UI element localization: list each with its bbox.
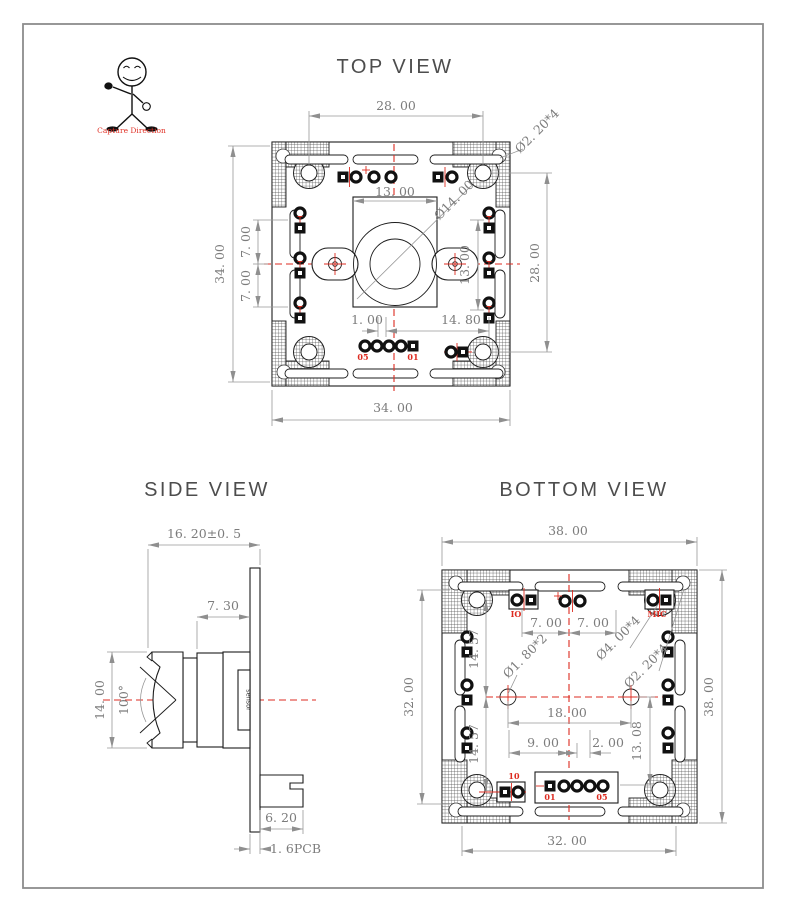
dim-side-fov: 100° [116, 685, 131, 715]
side-lens-cap [152, 652, 183, 748]
dim-top-1: 1. 00 [351, 312, 383, 327]
bottom-io2-label: 10 [508, 771, 520, 781]
dim-top-hole-dia: Ø2. 20*4 [512, 106, 562, 156]
bottom-io-label: IO [511, 609, 522, 619]
top-view: TOP VIEW [212, 56, 562, 426]
bottom-pin-01-label: 01 [544, 792, 555, 802]
dim-top-28-right: 28. 00 [527, 243, 542, 283]
top-pin-01-label: 01 [407, 352, 418, 362]
dim-top-34-left: 34. 00 [212, 244, 227, 284]
dim-side-730: 7. 30 [207, 598, 239, 613]
dim-side-pcb: 1. 6PCB [270, 841, 321, 856]
side-barrel-ring [183, 658, 197, 742]
dim-bottom-9: 9. 00 [527, 735, 559, 750]
dim-top-7b: 7. 00 [238, 270, 253, 302]
side-sensor-label: sensor [245, 689, 253, 711]
dim-bottom-2: 2. 00 [592, 735, 624, 750]
dim-bottom-1457b: 14. 57 [466, 724, 481, 764]
dim-top-13: 13. 00 [375, 184, 415, 199]
top-view-title: TOP VIEW [336, 56, 453, 78]
side-connector [260, 775, 303, 807]
dim-top-1480: 14. 80 [441, 312, 481, 327]
bottom-mic-connector [645, 588, 674, 611]
top-pin-05-label: 05 [357, 352, 368, 362]
dim-bottom-38-top: 38. 00 [548, 523, 588, 538]
capture-direction-label: Capture Direction [97, 126, 166, 135]
side-barrel [197, 653, 223, 747]
dim-bottom-32-bottom: 32. 00 [547, 833, 587, 848]
dim-top-7a: 7. 00 [238, 226, 253, 258]
dim-side-14: 14. 00 [92, 680, 107, 720]
bottom-io-connector [509, 588, 538, 611]
dim-bottom-1308: 13. 08 [629, 721, 644, 761]
bottom-mic-label: MIC [648, 609, 667, 619]
bottom-pin-05-label: 05 [596, 792, 607, 802]
side-view: SIDE VIEW sensor 16. 20±0. 5 7. 30 14. 0… [92, 479, 321, 856]
dim-bottom-32-left: 32. 00 [401, 677, 416, 717]
drawing-sheet: Capture Direction TOP VIEW [0, 0, 790, 909]
dim-top-28: 28. 00 [376, 98, 416, 113]
bottom-view-title: BOTTOM VIEW [499, 479, 668, 501]
dim-bottom-7a: 7. 00 [530, 615, 562, 630]
dim-top-13-vert: 13. 00 [457, 245, 472, 285]
bottom-view: BOTTOM VIEW [401, 479, 727, 856]
dim-bottom-1457a: 14. 57 [466, 629, 481, 669]
dim-bottom-38-right: 38. 00 [701, 677, 716, 717]
dim-side-total: 16. 20±0. 5 [167, 526, 241, 541]
camera-module-drawing: Capture Direction TOP VIEW [0, 0, 790, 909]
dim-bottom-18: 18. 00 [547, 705, 587, 720]
capture-direction-figure-icon [104, 58, 157, 132]
dim-bottom-7b: 7. 00 [577, 615, 609, 630]
dim-top-34-bottom: 34. 00 [373, 400, 413, 415]
side-view-title: SIDE VIEW [144, 479, 270, 501]
dim-side-620: 6. 20 [265, 810, 297, 825]
